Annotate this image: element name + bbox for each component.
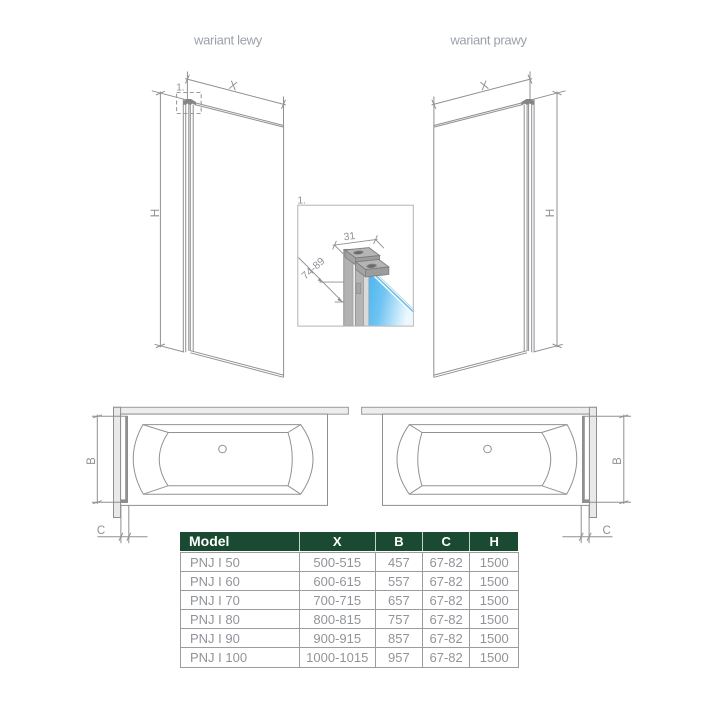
svg-text:B: B (612, 457, 624, 465)
svg-text:C: C (97, 525, 105, 537)
svg-text:31: 31 (343, 230, 356, 244)
svg-text:wariant prawy: wariant prawy (449, 33, 527, 48)
svg-text:X: X (227, 78, 238, 94)
svg-text:1.: 1. (298, 196, 306, 207)
svg-text:X: X (479, 78, 490, 94)
svg-text:B: B (86, 457, 98, 465)
svg-text:C: C (603, 525, 611, 537)
svg-text:H: H (543, 209, 557, 218)
svg-text:wariant lewy: wariant lewy (193, 33, 263, 48)
svg-text:1.: 1. (176, 83, 184, 94)
svg-text:H: H (148, 209, 162, 218)
